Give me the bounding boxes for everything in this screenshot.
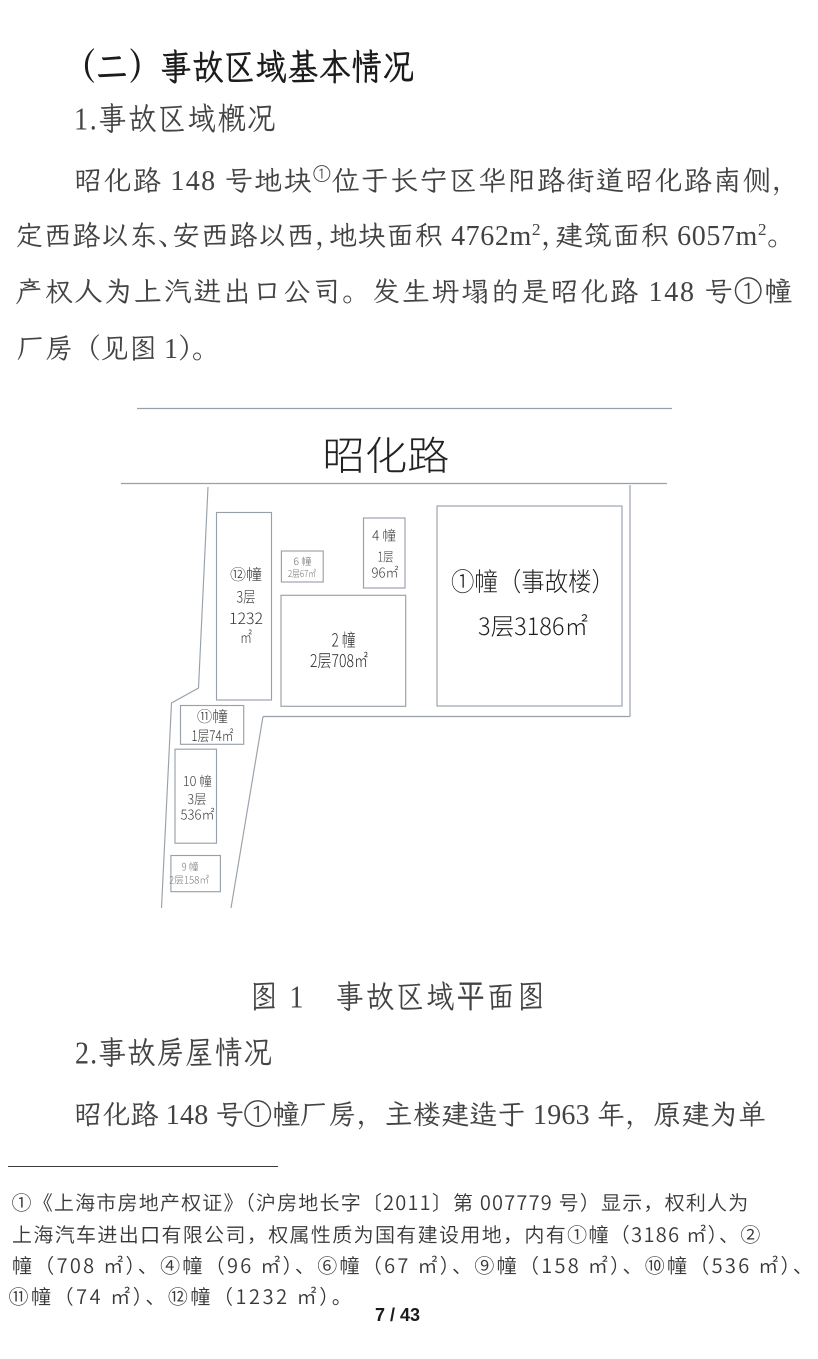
svg-text:2层67㎡: 2层67㎡ <box>288 566 316 580</box>
svg-text:⑪幢: ⑪幢 <box>197 705 228 727</box>
svg-text:536㎡: 536㎡ <box>181 804 215 824</box>
svg-text:⑫幢: ⑫幢 <box>230 563 262 585</box>
svg-text:2层708㎡: 2层708㎡ <box>310 648 368 673</box>
svg-text:4 幢: 4 幢 <box>372 526 396 546</box>
svg-text:3层3186㎡: 3层3186㎡ <box>478 607 588 642</box>
svg-text:96㎡: 96㎡ <box>372 562 399 582</box>
svg-text:10 幢: 10 幢 <box>183 770 212 790</box>
svg-text:1层74㎡: 1层74㎡ <box>191 725 233 746</box>
svg-text:㎡: ㎡ <box>240 626 252 648</box>
svg-text:①幢（事故楼）: ①幢（事故楼） <box>451 562 615 599</box>
svg-text:3层: 3层 <box>237 586 256 608</box>
svg-text:2层158㎡: 2层158㎡ <box>169 872 209 887</box>
svg-text:昭化路: 昭化路 <box>323 424 450 482</box>
